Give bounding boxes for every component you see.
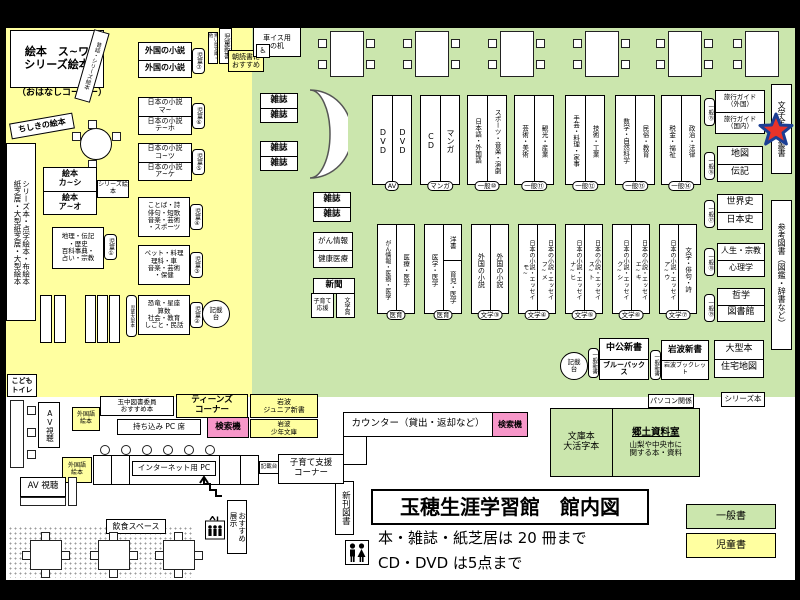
chair <box>109 569 118 578</box>
chair <box>129 551 138 560</box>
book-shelf <box>40 295 52 343</box>
aoitori-bunko-shelf: 青い鳥文庫・他 <box>208 32 218 64</box>
shelf-maps-biography: 地図 伝記 <box>717 146 763 182</box>
chair <box>27 406 36 415</box>
table-divider <box>111 455 112 485</box>
shelf-dvd: DVD DVD AV <box>372 95 412 185</box>
shelf-chuko-shinsho: 中公新書 ブルーバックス <box>599 338 649 380</box>
storytelling-corner-label: （おはなしコーナー） <box>6 86 118 100</box>
local-collection-room: 文庫本 大活字本 郷土資料室 山梨や中央市に 関する本・資料 <box>550 408 700 477</box>
iwanami-shonen-bunko: 岩波 少年文庫 <box>250 419 318 438</box>
chair <box>451 39 460 48</box>
chair <box>403 39 412 48</box>
newspaper-box: 新聞 <box>313 278 355 294</box>
chair <box>109 532 118 541</box>
shelf-cd-manga: CD マンガ マンガ <box>420 95 460 185</box>
book-shelf <box>109 295 120 343</box>
book-shelf <box>54 295 66 343</box>
shelf-picture-books-ka: 絵本 カ~シ 絵本 ア~オ <box>43 167 97 215</box>
av-viewing-booth-2: AV 視聴 <box>20 477 66 497</box>
chair <box>733 39 742 48</box>
local-room-title: 郷土資料室 <box>632 428 680 438</box>
series-books-label: シリーズ本 <box>721 392 765 407</box>
badge-jido7: 児童⑦ <box>192 48 205 74</box>
recommend-display-shelf: おすすめ 展示 <box>227 500 247 554</box>
shelf-math-folklore: 数学・自然科学 民俗・教育 一般⑬ <box>615 95 655 185</box>
chair <box>573 39 582 48</box>
foreign-picture-books-2: 外国語 絵本 <box>62 457 92 483</box>
shelf-geography-history: 地理・伝記 ・歴史 百科事典・ 占い・宗教 <box>52 227 104 269</box>
chair <box>121 445 131 455</box>
chair <box>451 60 460 69</box>
study-table <box>668 31 702 77</box>
iwanami-junior-shinsho: 岩波 ジュニア新書 <box>250 394 318 418</box>
chair <box>403 60 412 69</box>
badge-ippan18: 一般⑱ <box>704 248 715 276</box>
chair <box>174 569 183 578</box>
shelf-language-sports: 日本語・外国語 スポーツ・音楽・演劇 一般⑩ <box>467 95 507 185</box>
elevator-icon <box>205 516 225 540</box>
book-shelf <box>85 295 96 343</box>
search-terminal-1: 検索機 <box>492 412 528 437</box>
rule-books-limit: 本・雑誌・紙芝居は 20 冊まで <box>378 529 618 549</box>
library-floor-map: 絵本 ス~ワ シリーズ絵本 （おはなしコーナー） 昔話・シリーズ絵本 ちしきの絵… <box>0 0 800 600</box>
magazine-shelf: 雑誌 雑誌 <box>260 141 298 171</box>
childcare-support-corner: 子育て支援 コーナー <box>278 454 344 484</box>
chair <box>205 445 215 455</box>
shelf-pets-science: ペット・料理 理科・車 音楽・芸術 ・保健 <box>138 245 190 285</box>
av-sofa <box>20 497 66 506</box>
shelf-iwanami-shinsho: 岩波新書 岩波ブックレット <box>661 340 709 380</box>
cancer-health-info-box: がん情報 健康医療 <box>313 232 353 268</box>
byod-pc-seat: 持ち込み PC 席 <box>117 419 201 435</box>
circulation-counter: カウンター（貸出・返却など） <box>343 412 493 437</box>
chair <box>656 60 665 69</box>
legend-general: 一般書 <box>686 504 776 529</box>
shelf-foreign-novels: 外国の小説 外国の小説 文学③ <box>471 224 509 314</box>
chair <box>184 445 194 455</box>
children-toilet: こども トイレ <box>7 374 37 397</box>
badge-jido6: 児童⑥ <box>192 103 205 129</box>
shelf-art-tourism: 芸術・美術 観光・産業 一般⑪ <box>514 95 554 185</box>
study-table <box>500 31 534 77</box>
shelf-jp-novels-ma: 日本の小説 マ~ 日本の小説 テ~ホ <box>138 97 192 135</box>
new-books-shelf: 新刊図書 <box>335 481 354 535</box>
stairs-icon <box>196 476 224 498</box>
chair <box>488 39 497 48</box>
study-table <box>330 31 364 77</box>
writing-desk-label: 記載台 <box>259 461 279 474</box>
study-table <box>415 31 449 77</box>
shelf-jp-essay-ku: 日本の小説・エッセイ ク~シ 日本の小説・エッセイ エ~キ 文学⑥ <box>612 224 650 314</box>
shelf-language-arts: ことば・詩 俳句・短歌 音楽・芸術 ・スポーツ <box>138 197 190 237</box>
crescent-shelf <box>300 88 348 180</box>
shelf-crafts-tech: 手芸・料理・家事 技術・工業 一般⑫ <box>565 95 605 185</box>
chair <box>41 569 50 578</box>
star-marker-icon <box>758 112 794 148</box>
chair <box>194 551 203 560</box>
chair <box>318 60 327 69</box>
shelf-philosophy-library: 哲学 図書館 <box>717 288 765 322</box>
shelf-life-psychology: 人生・宗教 心理学 <box>717 243 765 277</box>
chair <box>100 445 110 455</box>
chair <box>621 60 630 69</box>
reference-books-strip: 参考図書（図鑑・辞書など） <box>771 200 792 350</box>
chair <box>366 39 375 48</box>
counter-leg <box>343 436 367 465</box>
chair <box>536 60 545 69</box>
school-committee-recommend-box: 玉中図書委員 おすすめ本 <box>100 396 174 416</box>
badge-ippan19: 一般⑲ <box>704 294 715 322</box>
av-table <box>10 400 24 468</box>
restroom-icon <box>345 540 369 565</box>
badge-ippan15: 一般⑮ <box>704 98 715 126</box>
chair <box>112 132 121 141</box>
shelf-foreign-novels-kids: 外国の小説 外国の小説 <box>138 42 192 78</box>
local-room-desc: 山梨や中央市に 関する本・資料 <box>630 441 683 458</box>
chair <box>536 39 545 48</box>
paperback-large-print-area: 文庫本 大活字本 <box>551 409 612 476</box>
study-table <box>585 31 619 77</box>
round-table <box>80 128 112 160</box>
shelf-jp-novels-ko: 日本の小説 コ~ツ 日本の小説 ア~ケ <box>138 143 192 181</box>
chair <box>90 551 99 560</box>
rule-cd-dvd-limit: CD・DVD は5点まで <box>378 554 618 574</box>
shelf-medical-1: がん情報・医療・医学 医療・医学 医育 <box>377 224 415 314</box>
eating-table <box>30 540 62 570</box>
badge-jido3: 児童③ <box>190 252 203 278</box>
study-table <box>745 31 779 77</box>
book-shelf <box>97 295 108 343</box>
av-viewing-booth-1: AV視聴 <box>38 402 60 448</box>
chair <box>573 60 582 69</box>
badge-jido5: 児童⑤ <box>192 149 205 175</box>
chair <box>174 532 183 541</box>
map-title: 玉穂生涯学習館 館内図 <box>371 489 649 525</box>
chair <box>163 445 173 455</box>
av-sofa <box>68 477 77 506</box>
badge-shinsho-2: 一般新書 <box>650 350 661 380</box>
chair <box>366 60 375 69</box>
badge-ippan17: 一般⑰ <box>704 200 715 228</box>
chair <box>488 60 497 69</box>
magazine-shelf: 雑誌 雑誌 <box>313 192 351 222</box>
childcare-support-books-box: 子育て 応援 <box>311 293 334 318</box>
chair <box>733 60 742 69</box>
eating-table <box>98 540 130 570</box>
eating-table <box>163 540 195 570</box>
badge-shinsho-1: 一般新書 <box>588 348 599 378</box>
internet-pc-label: インターネット用 PC <box>132 461 216 476</box>
badge-ippan16: 一般⑯ <box>704 152 715 180</box>
teens-corner: ティーンズ コーナー <box>176 394 248 418</box>
writing-desk-children: 記載 台 <box>202 300 230 328</box>
shelf-large-books-housing-maps: 大型本 住宅地図 <box>714 340 764 378</box>
shelf-jp-essay-a-poetry: 日本の小説・エッセイ ア~ウ 文学・俳句・詩 文学⑦ <box>659 224 697 314</box>
chair <box>155 551 164 560</box>
shelf-jp-essay-mo: 日本の小説・エッセイ モ~ 日本の小説・エッセイ フ~メ 文学④ <box>518 224 556 314</box>
chair <box>22 551 31 560</box>
badge-jido4: 児童④ <box>190 204 203 230</box>
series-braille-kamishibai-shelf: シリーズ本・点字絵本・布絵本 紙芝居・大型紙芝居・大型絵本 <box>6 143 36 321</box>
pc-related-label: パソコン関係 <box>648 394 694 408</box>
table-divider <box>240 455 241 485</box>
chair <box>61 551 70 560</box>
shelf-world-japan-history: 世界史 日本史 <box>717 194 763 230</box>
chair <box>27 450 36 459</box>
search-terminal-2: 検索機 <box>207 417 249 438</box>
foreign-picture-books-1: 外国語 絵本 <box>72 407 100 431</box>
children-large-books-label: 児童大型本 <box>126 295 137 337</box>
chair <box>621 39 630 48</box>
chair <box>704 39 713 48</box>
chair <box>27 428 36 437</box>
shelf-jp-essay-na: 日本の小説・エッセイ ナ~ヒ 日本の小説・エッセイ ス~ト 文学⑤ <box>565 224 603 314</box>
literary-award-box: 文学賞 <box>336 293 355 318</box>
shelf-tax-politics: 税金・福祉 政治・法律 一般⑭ <box>661 95 701 185</box>
chair <box>41 532 50 541</box>
table-divider <box>129 455 130 485</box>
series-picture-books-box: シリーズ絵本 <box>97 180 129 198</box>
chair <box>88 120 97 129</box>
wheelchair-icon: ♿ <box>256 44 270 58</box>
badge-jido1: 児童① <box>104 234 117 260</box>
chair <box>656 39 665 48</box>
writing-desk-general: 記載 台 <box>560 352 588 380</box>
chair <box>704 60 713 69</box>
badge-jido2: 児童② <box>190 302 203 328</box>
shelf-dinosaur-society: 恐竜・星座 算数 社会・教育 しごと・民話 <box>138 295 190 335</box>
chair <box>142 445 152 455</box>
legend-children: 児童書 <box>686 533 776 558</box>
shelf-medical-2: 医学・医学 洋書 育児・医学 医育 <box>424 224 462 314</box>
chair <box>318 39 327 48</box>
magazine-shelf: 雑誌 雑誌 <box>260 93 298 123</box>
chair <box>72 132 81 141</box>
